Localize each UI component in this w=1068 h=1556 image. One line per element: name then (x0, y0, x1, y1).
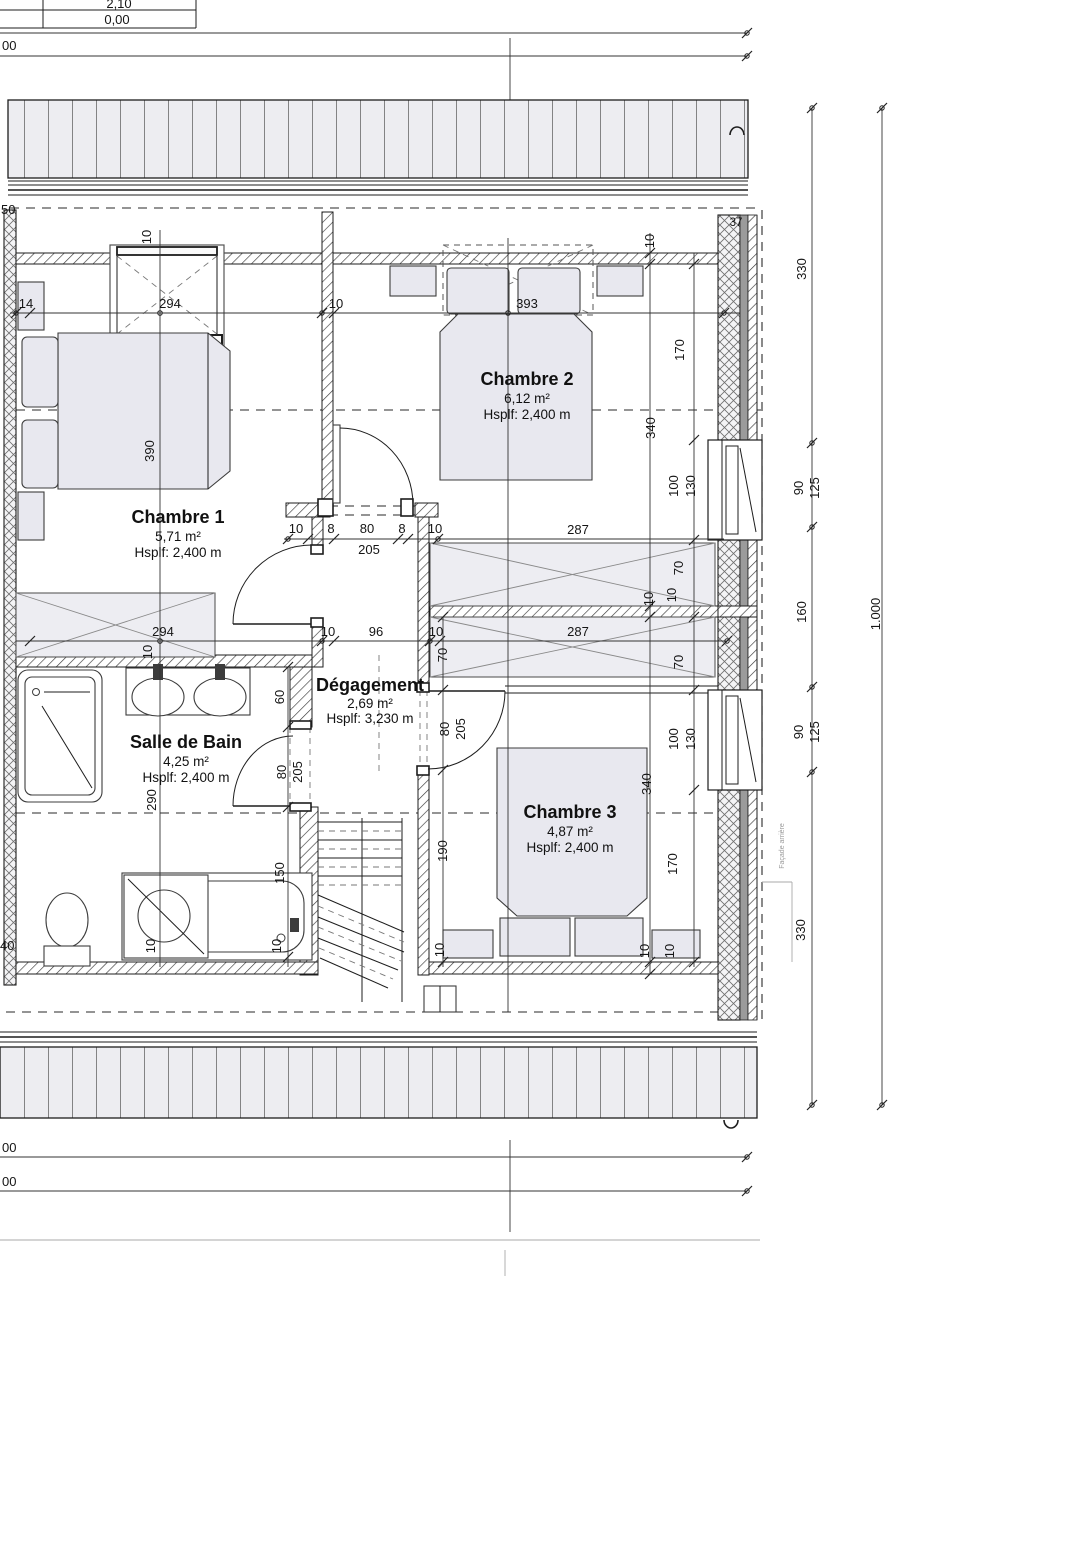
room-height-sdb: Hsplf: 2,400 m (142, 770, 229, 785)
dim-100-bottom: 100 (666, 728, 681, 750)
room-area-chambre2: 6,12 m² (504, 391, 550, 406)
dim-10-low-a: 10 (321, 624, 335, 639)
dim-290: 290 (144, 789, 159, 811)
dim-294-lower: 294 (152, 624, 174, 639)
dim-10-deg: 10 (432, 943, 447, 957)
knee-wall-bottom-right (429, 962, 718, 974)
dim-100-top: 100 (666, 475, 681, 497)
room-height-chambre3: Hsplf: 2,400 m (526, 840, 613, 855)
gutter-hook-icon (724, 1120, 738, 1128)
window-chambre3 (708, 690, 762, 790)
dim-10-c1: 10 (641, 592, 656, 606)
dim-170-bottom: 170 (665, 853, 680, 875)
faucet-icon (215, 664, 225, 680)
dim-10-axis: 10 (143, 939, 158, 953)
dim-door1-10l: 10 (289, 521, 303, 536)
bath-seat-circle (138, 890, 190, 942)
dim-130-top: 130 (683, 475, 698, 497)
dim-10-c2: 10 (664, 588, 679, 602)
pillow (22, 337, 58, 407)
door-leaf-ch2 (333, 425, 340, 503)
dim-14: 14 (19, 296, 33, 311)
wall-deg-ch3-lower (418, 770, 429, 975)
room-name-chambre1: Chambre 1 (131, 507, 224, 527)
wall-central (430, 606, 757, 617)
dim-150: 150 (272, 862, 287, 884)
dim-10-tub: 10 (269, 939, 284, 953)
tub-faucet-icon (290, 918, 299, 932)
exterior-wall-left (4, 210, 16, 985)
nightstand (18, 492, 44, 540)
dim-10-win2: 10 (642, 234, 657, 248)
dim-90-bottom: 90 (791, 725, 806, 739)
pillow (500, 918, 570, 956)
toilet-tank (44, 946, 90, 966)
overall-dim-bottom-2: 00 (2, 1174, 16, 1189)
dim-393: 393 (516, 296, 538, 311)
dim-left-bottom-cut: 40 (0, 938, 14, 953)
sink-basin (194, 678, 246, 716)
sink-basin (132, 678, 184, 716)
dim-door1-205: 205 (358, 542, 380, 557)
bottom-dimension-lines: 00 00 (0, 1140, 760, 1276)
facade-note-leader: Façade arrière (762, 823, 792, 962)
dim-door1-8r: 8 (398, 521, 405, 536)
dim-80-deg: 80 (437, 722, 452, 736)
room-name-chambre3: Chambre 3 (523, 802, 616, 822)
room-area-chambre1: 5,71 m² (155, 529, 201, 544)
top-dimension-lines: 00 (0, 28, 752, 100)
dim-125-bottom: 125 (807, 721, 822, 743)
window-chambre2 (708, 440, 762, 540)
dim-10-partition: 10 (329, 296, 343, 311)
dim-330-top: 330 (794, 258, 809, 280)
pillow (575, 918, 643, 956)
room-area-chambre3: 4,87 m² (547, 824, 593, 839)
room-name-chambre2: Chambre 2 (480, 369, 573, 389)
room-height-degagement: Hsplf: 3,230 m (326, 711, 413, 726)
dim-287-upper: 287 (567, 522, 589, 537)
nightstand (597, 266, 643, 296)
dim-60: 60 (272, 690, 287, 704)
dim-10-b2: 10 (662, 944, 677, 958)
dim-1000: 1.000 (868, 598, 883, 631)
dim-294-top: 294 (159, 296, 181, 311)
dim-10-b1: 10 (637, 944, 652, 958)
facade-note: Façade arrière (779, 823, 786, 869)
pillow (447, 268, 509, 314)
dim-door1-8l: 8 (327, 521, 334, 536)
dim-10-win1: 10 (139, 230, 154, 244)
dim-205-sdb: 205 (290, 761, 305, 783)
floor-plan-page: 2,10 0,00 00 (0, 0, 1068, 1556)
dim-door1-10r: 10 (428, 521, 442, 536)
dim-330-bottom: 330 (793, 919, 808, 941)
room-height-chambre2: Hsplf: 2,400 m (483, 407, 570, 422)
room-name-degagement: Dégagement (316, 675, 424, 695)
furniture-salle-de-bain (18, 664, 312, 966)
toilet-bowl (46, 893, 88, 947)
dim-left-top-cut: 50 (1, 202, 15, 217)
nightstand (390, 266, 436, 296)
dim-287-lower: 287 (567, 624, 589, 639)
dim-70-bottom: 70 (671, 655, 686, 669)
dim-80-sdb: 80 (274, 765, 289, 779)
dim-170-top: 170 (672, 339, 687, 361)
level-value-2: 0,00 (104, 12, 129, 27)
overall-dim-bottom-1: 00 (2, 1140, 16, 1155)
dim-125-top: 125 (807, 477, 822, 499)
roof-overhang-top (8, 100, 748, 195)
wall-sdb-east-upper (290, 667, 312, 727)
levels-table: 2,10 0,00 (0, 0, 196, 28)
floor-plan-drawing: 2,10 0,00 00 (0, 0, 1068, 1556)
pillow (22, 420, 58, 488)
room-area-degagement: 2,69 m² (347, 696, 393, 711)
dim-340-bottom: 340 (639, 773, 654, 795)
dim-160: 160 (794, 601, 809, 623)
dim-205-deg: 205 (453, 718, 468, 740)
level-value-1: 2,10 (106, 0, 131, 11)
roof-overhang-bottom (0, 1032, 757, 1128)
dim-70-top: 70 (671, 561, 686, 575)
overall-dim-top: 00 (2, 38, 16, 53)
nightstand (443, 930, 493, 958)
door-swing-ch1 (233, 545, 312, 624)
wall-deg-ch3-upper (418, 517, 429, 690)
dim-37-wall: 37 (730, 217, 743, 229)
room-area-sdb: 4,25 m² (163, 754, 209, 769)
room-height-chambre1: Hsplf: 2,400 m (134, 545, 221, 560)
dim-96: 96 (369, 624, 383, 639)
faucet-icon (153, 664, 163, 680)
dim-340-top: 340 (643, 417, 658, 439)
dim-390: 390 (142, 440, 157, 462)
dim-door1-80: 80 (360, 521, 374, 536)
dim-10-low-b: 10 (429, 624, 443, 639)
wall-h2b (415, 503, 438, 517)
dim-90-top: 90 (791, 481, 806, 495)
dim-190: 190 (435, 840, 450, 862)
partition-ch1-ch2 (322, 212, 333, 503)
dim-70-deg: 70 (435, 648, 450, 662)
bed-mattress (58, 333, 230, 489)
door-swing-ch2 (340, 428, 413, 505)
dim-130-bottom: 130 (683, 728, 698, 750)
dim-10-h3: 10 (140, 645, 155, 659)
room-name-sdb: Salle de Bain (130, 732, 242, 752)
